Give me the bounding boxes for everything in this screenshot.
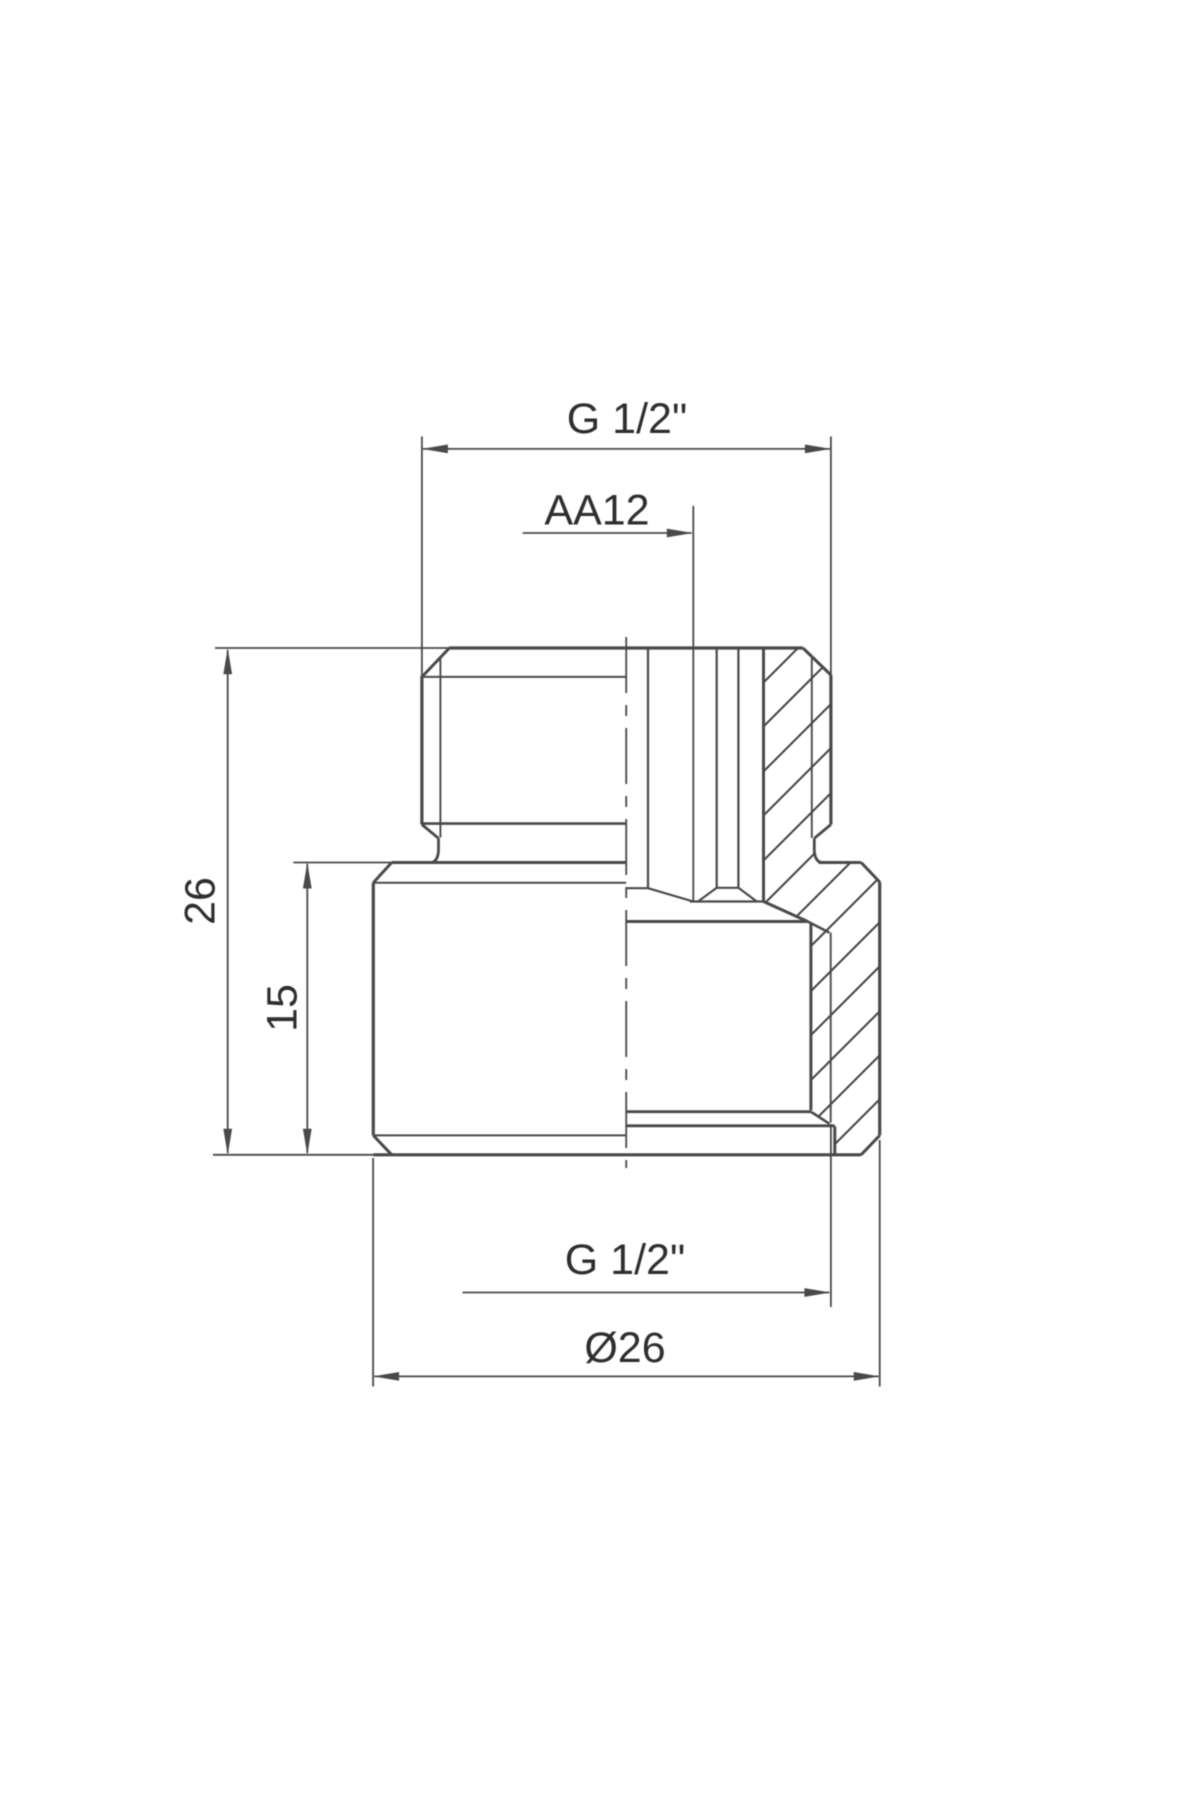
svg-text:Ø26: Ø26 <box>584 1324 665 1372</box>
svg-text:26: 26 <box>177 877 225 925</box>
svg-text:AA12: AA12 <box>544 486 649 534</box>
svg-text:G 1/2": G 1/2" <box>567 395 687 443</box>
svg-text:15: 15 <box>259 984 307 1032</box>
svg-text:G 1/2": G 1/2" <box>565 1236 685 1284</box>
